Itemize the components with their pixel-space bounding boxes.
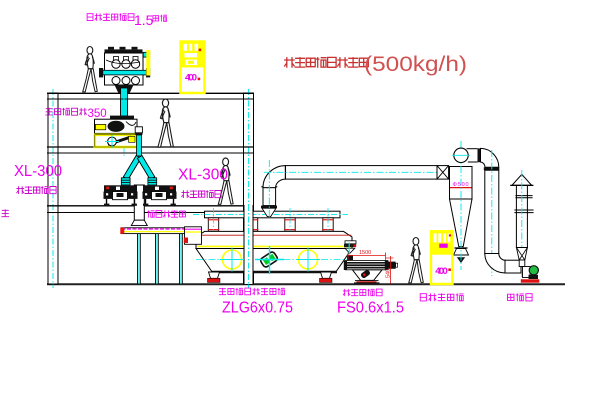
svg-text:Φ500: Φ500 <box>453 182 469 188</box>
svg-text:400: 400 <box>185 73 197 84</box>
svg-text:XL-300: XL-300 <box>178 167 228 184</box>
svg-text:(500kg/h): (500kg/h) <box>364 53 467 76</box>
svg-text:1500: 1500 <box>359 250 371 256</box>
svg-text:350: 350 <box>88 108 107 120</box>
svg-text:ZLG6x0.75: ZLG6x0.75 <box>222 300 293 317</box>
svg-text:1.5: 1.5 <box>134 12 154 28</box>
svg-text:540: 540 <box>386 269 392 278</box>
svg-text:XL-300: XL-300 <box>14 163 62 180</box>
svg-text:400: 400 <box>435 266 448 277</box>
svg-text:FS0.6x1.5: FS0.6x1.5 <box>337 300 404 317</box>
